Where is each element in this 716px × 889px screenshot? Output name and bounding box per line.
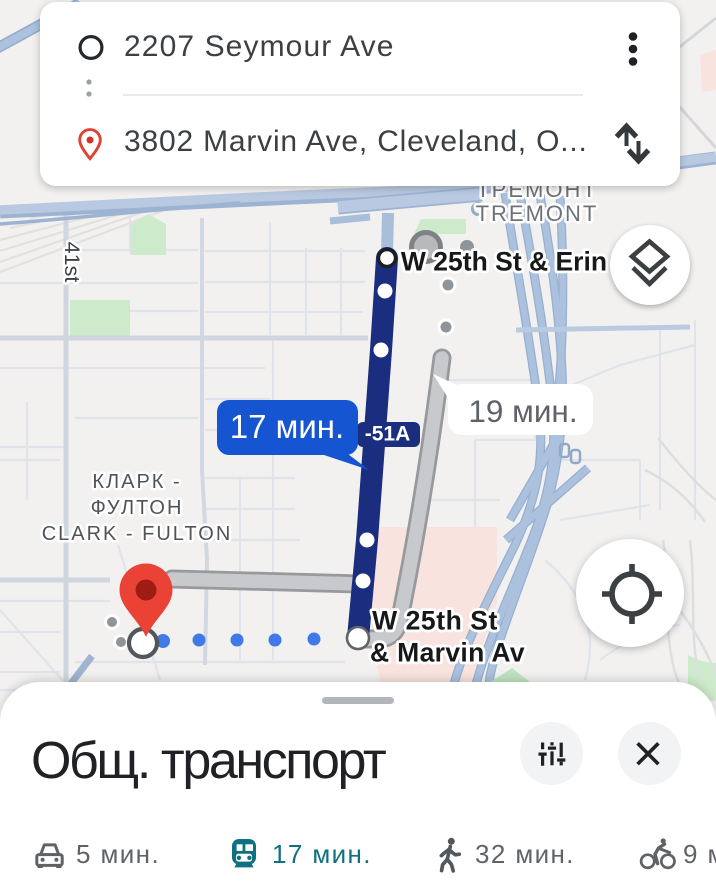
svg-text:& Marvin Av: & Marvin Av [370,638,525,668]
svg-text:19 мин.: 19 мин. [468,393,577,429]
svg-text:ФУЛТОН: ФУЛТОН [91,497,184,519]
svg-text:W 25th St & Erin: W 25th St & Erin [401,247,607,277]
svg-text:КЛАРК -: КЛАРК - [92,471,181,493]
svg-text:W 25th St: W 25th St [372,606,498,636]
svg-text:CLARK - FULTON: CLARK - FULTON [42,523,233,545]
svg-text:TREMONT: TREMONT [476,201,599,226]
svg-text:-51A: -51A [365,423,411,446]
svg-text:17 мин.: 17 мин. [230,408,344,445]
svg-text:41st: 41st [60,242,84,283]
